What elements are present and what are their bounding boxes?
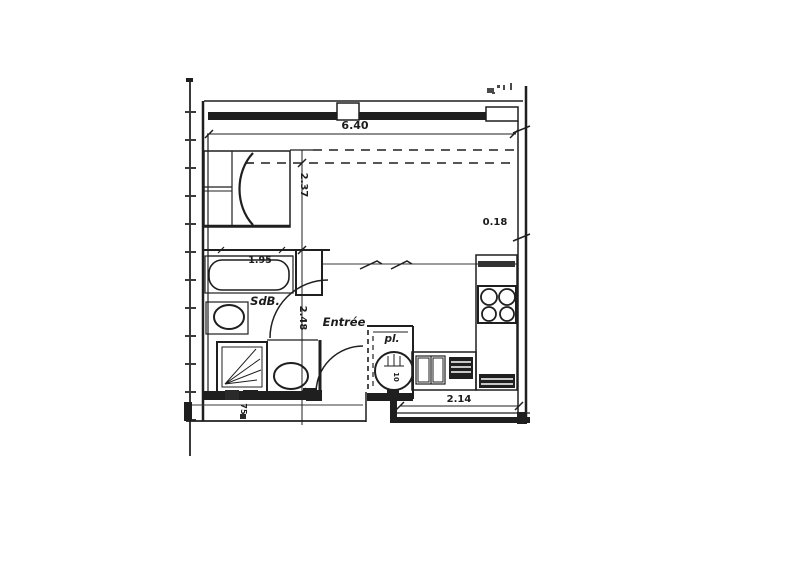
entry-door-arc [316,346,363,393]
floor-plan-page: 6.40 2.37 0.18 1.95 SdB. 2.48 Entrée pl.… [0,0,800,572]
dim-wall-offset: 0.18 [483,217,508,228]
wall-stub [296,250,322,295]
entry-door [306,346,363,401]
top-right-pillar [486,107,518,121]
burner [499,289,515,305]
bathroom [203,247,330,399]
floor-plan-canvas: 6.40 2.37 0.18 1.95 SdB. 2.48 Entrée pl.… [0,0,800,572]
dim-landing: 75 [239,403,248,415]
kitchen-base-unit [479,374,515,388]
window-divider [337,103,359,120]
dim-entry-depth: 2.48 [297,306,308,331]
kitchen [412,255,517,390]
building-boundary-line [185,78,196,456]
label-bathroom: SdB. [250,294,280,308]
washbasin [214,305,244,329]
shower-hatch [225,349,261,384]
shower-outline [217,342,267,392]
label-closet: pl. [383,333,399,345]
label-entry: Entrée [323,315,366,329]
drainer [449,357,473,379]
burner [500,307,514,321]
burner [482,307,496,321]
dim-bathtub: 1.95 [248,255,271,266]
label-water-heater: 10 [392,372,400,382]
scan-artifact [487,83,512,94]
dashed-ceiling-lines [245,150,516,163]
dim-top-width: 6.40 [341,119,368,132]
burner [481,289,497,305]
dim-kitchen-width: 2.14 [447,394,472,405]
toilet [274,363,308,389]
dim-bed-depth: 2.37 [298,173,309,198]
